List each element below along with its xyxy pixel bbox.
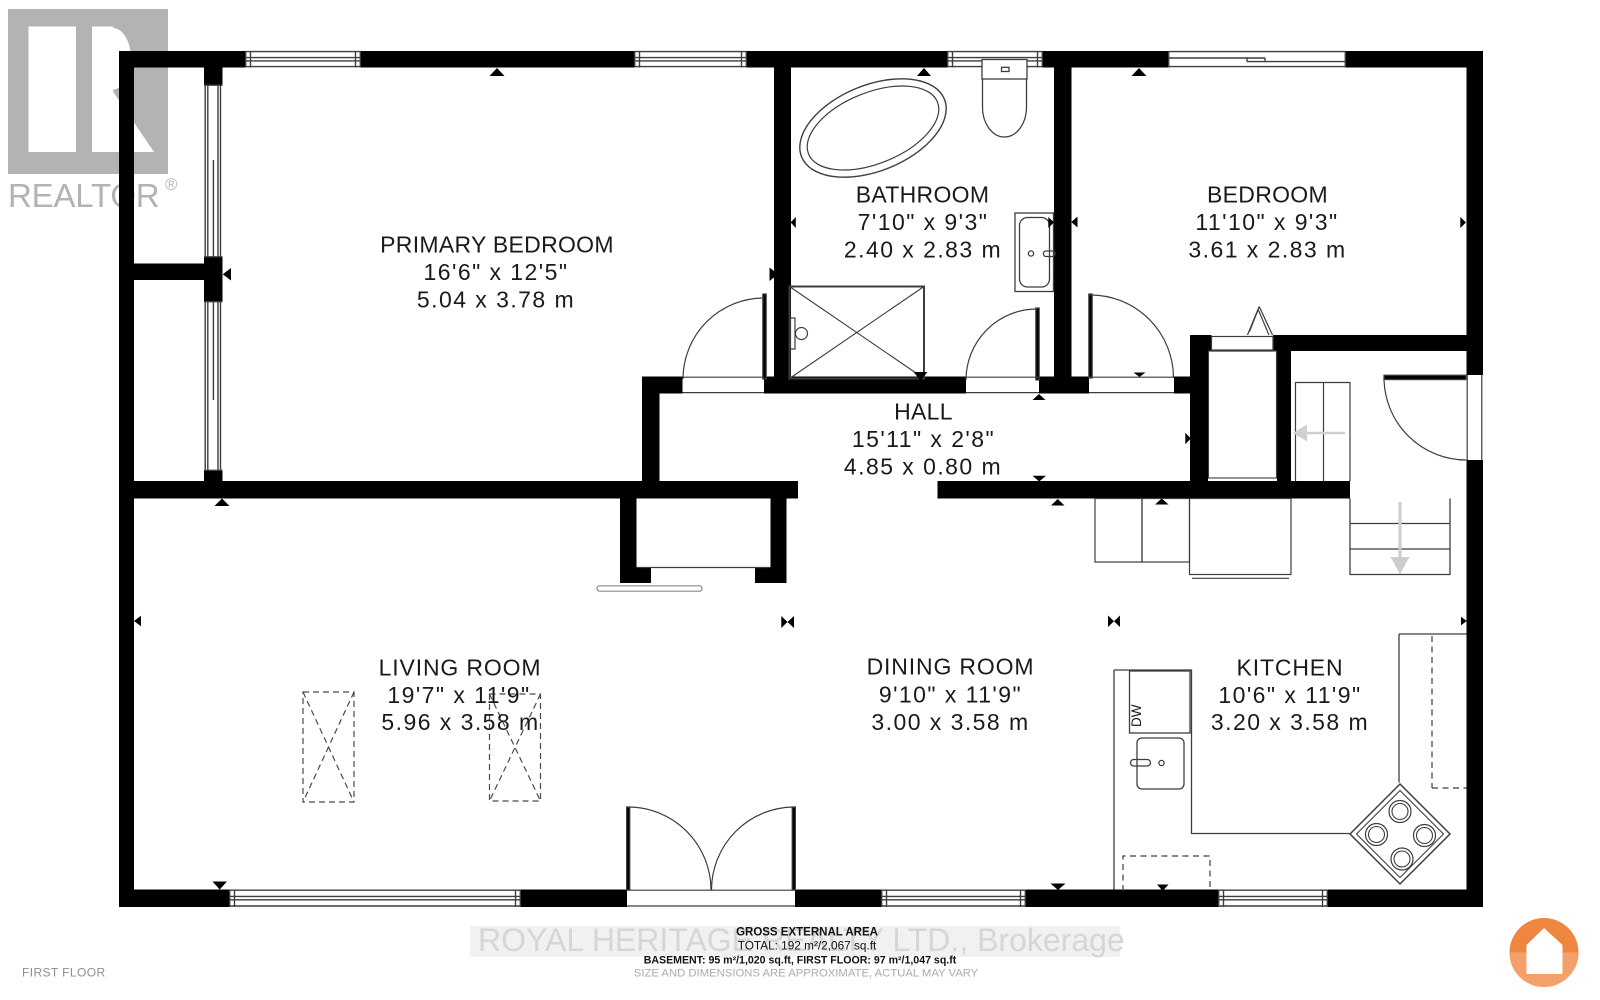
svg-text:3.61 x 2.83 m: 3.61 x 2.83 m <box>1188 237 1346 263</box>
svg-text:®: ® <box>165 175 178 194</box>
svg-text:BEDROOM: BEDROOM <box>1207 182 1328 208</box>
svg-text:TOTAL: 192 m²/2,067 sq.ft: TOTAL: 192 m²/2,067 sq.ft <box>738 939 877 953</box>
svg-text:9'10" x 11'9": 9'10" x 11'9" <box>879 682 1022 708</box>
svg-text:BASEMENT: 95 m²/1,020 sq.ft, F: BASEMENT: 95 m²/1,020 sq.ft, FIRST FLOOR… <box>644 955 957 967</box>
svg-text:LIVING ROOM: LIVING ROOM <box>379 655 542 681</box>
svg-text:4.85 x 0.80 m: 4.85 x 0.80 m <box>844 454 1002 480</box>
svg-text:7'10" x 9'3": 7'10" x 9'3" <box>858 209 989 235</box>
svg-text:11'10" x 9'3": 11'10" x 9'3" <box>1195 209 1338 235</box>
svg-text:10'6" x 11'9": 10'6" x 11'9" <box>1218 682 1361 708</box>
svg-text:HALL: HALL <box>894 399 953 425</box>
svg-text:5.04 x 3.78 m: 5.04 x 3.78 m <box>417 287 575 313</box>
svg-text:BATHROOM: BATHROOM <box>856 182 990 208</box>
svg-text:KITCHEN: KITCHEN <box>1237 655 1344 681</box>
svg-text:15'11" x 2'8": 15'11" x 2'8" <box>852 426 995 452</box>
svg-text:2.40 x 2.83 m: 2.40 x 2.83 m <box>844 237 1002 263</box>
svg-text:16'6" x 12'5": 16'6" x 12'5" <box>424 259 569 285</box>
svg-text:REALTOR: REALTOR <box>8 177 159 214</box>
svg-text:SIZE AND DIMENSIONS ARE APPROX: SIZE AND DIMENSIONS ARE APPROXIMATE, ACT… <box>634 968 979 980</box>
svg-text:PRIMARY BEDROOM: PRIMARY BEDROOM <box>380 232 614 258</box>
svg-text:5.96 x 3.58 m: 5.96 x 3.58 m <box>381 709 539 735</box>
svg-text:FIRST FLOOR: FIRST FLOOR <box>22 966 106 980</box>
svg-text:DINING ROOM: DINING ROOM <box>867 654 1035 680</box>
svg-text:3.00 x 3.58 m: 3.00 x 3.58 m <box>871 709 1029 735</box>
svg-text:GROSS EXTERNAL AREA: GROSS EXTERNAL AREA <box>736 927 878 939</box>
svg-text:19'7" x 11'9": 19'7" x 11'9" <box>387 682 530 708</box>
svg-text:3.20 x 3.58 m: 3.20 x 3.58 m <box>1211 709 1369 735</box>
svg-text:DW: DW <box>1129 704 1144 727</box>
